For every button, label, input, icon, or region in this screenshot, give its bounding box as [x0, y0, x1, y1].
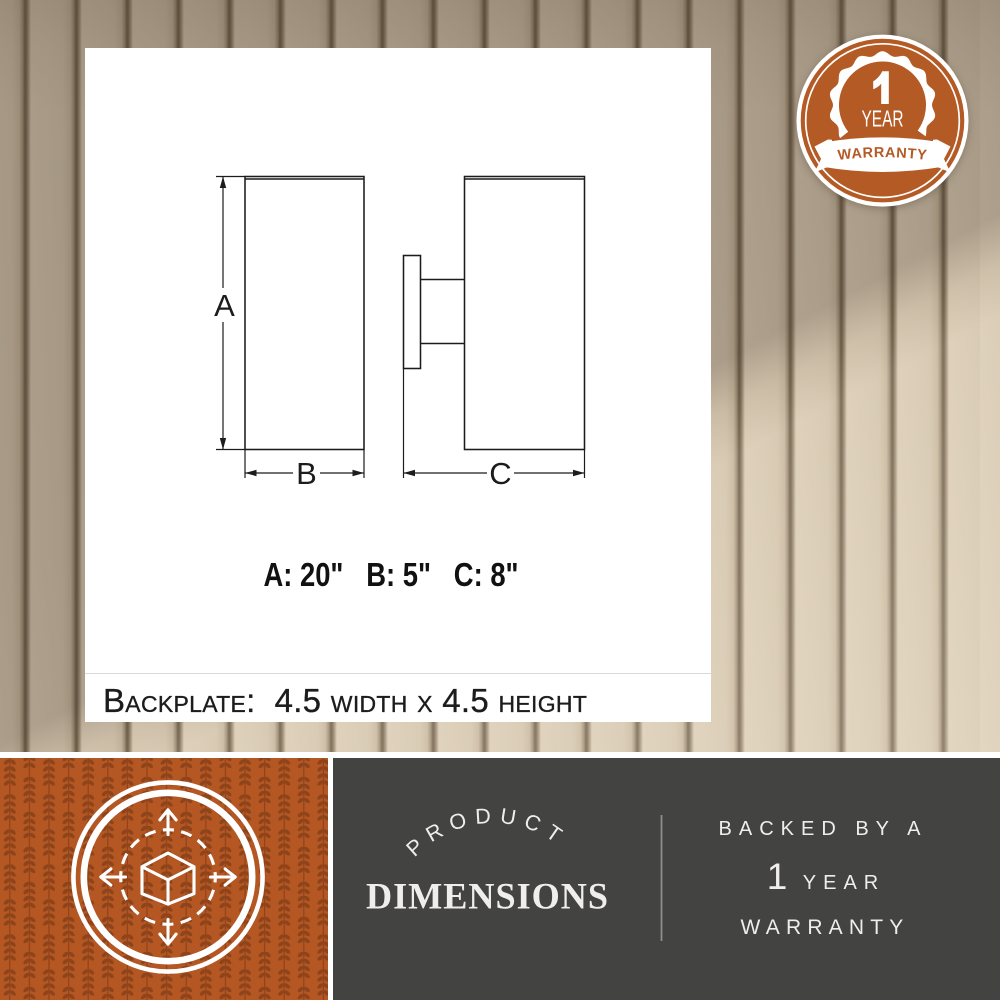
svg-text:DIMENSIONS: DIMENSIONS [366, 877, 609, 918]
svg-text:C: C [489, 456, 511, 491]
svg-text:B: B [296, 456, 317, 491]
svg-text:YEAR: YEAR [803, 872, 885, 894]
svg-text:A: A [214, 288, 235, 323]
svg-text:YEAR: YEAR [862, 106, 904, 132]
svg-text:BACKED BY A: BACKED BY A [719, 818, 928, 840]
svg-text:WARRANTY: WARRANTY [741, 916, 910, 939]
svg-text:1: 1 [767, 856, 788, 897]
svg-text:PRODUCT: PRODUCT [402, 804, 573, 862]
